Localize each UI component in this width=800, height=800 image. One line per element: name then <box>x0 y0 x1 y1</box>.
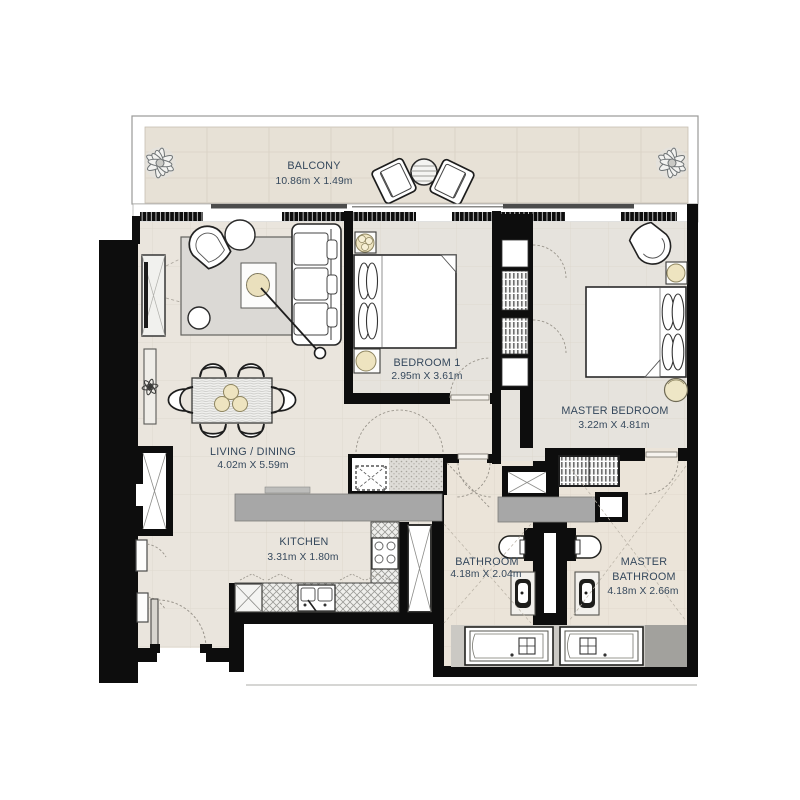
svg-text:MASTER: MASTER <box>621 556 668 568</box>
svg-text:3.22m X 4.81m: 3.22m X 4.81m <box>578 420 649 431</box>
svg-text:BEDROOM 1: BEDROOM 1 <box>393 357 460 369</box>
svg-text:10.86m X 1.49m: 10.86m X 1.49m <box>276 176 353 187</box>
svg-text:MASTER BEDROOM: MASTER BEDROOM <box>561 405 668 417</box>
svg-text:BATHROOM: BATHROOM <box>455 556 519 568</box>
svg-text:BATHROOM: BATHROOM <box>612 571 676 583</box>
svg-text:3.31m X 1.80m: 3.31m X 1.80m <box>267 552 338 563</box>
svg-text:2.95m X 3.61m: 2.95m X 3.61m <box>391 371 462 382</box>
svg-text:4.18m X 2.66m: 4.18m X 2.66m <box>607 586 678 597</box>
svg-text:KITCHEN: KITCHEN <box>279 536 328 548</box>
svg-text:BALCONY: BALCONY <box>287 160 340 172</box>
svg-text:4.02m X 5.59m: 4.02m X 5.59m <box>217 460 288 471</box>
svg-text:LIVING / DINING: LIVING / DINING <box>210 446 296 458</box>
svg-text:4.18m X 2.04m: 4.18m X 2.04m <box>450 569 521 580</box>
